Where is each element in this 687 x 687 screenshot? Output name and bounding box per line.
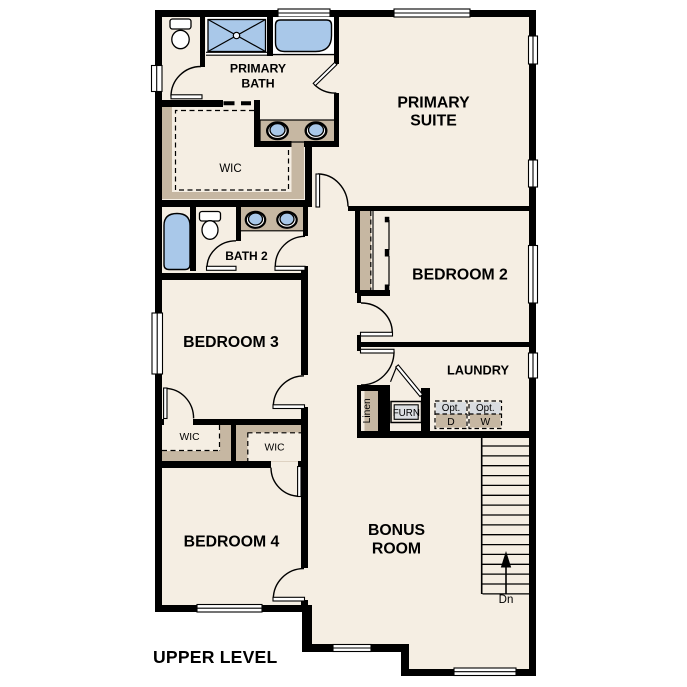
svg-text:W: W	[480, 417, 490, 428]
svg-text:SUITE: SUITE	[410, 113, 457, 130]
svg-text:ROOM: ROOM	[372, 541, 421, 558]
svg-text:BEDROOM 4: BEDROOM 4	[184, 533, 280, 550]
svg-text:D: D	[447, 417, 454, 428]
svg-text:Dn: Dn	[499, 594, 514, 606]
svg-text:LAUNDRY: LAUNDRY	[447, 362, 510, 377]
svg-text:UPPER LEVEL: UPPER LEVEL	[153, 647, 277, 667]
svg-text:Opt.: Opt.	[476, 403, 495, 414]
svg-text:WIC: WIC	[179, 432, 200, 443]
svg-text:PRIMARY: PRIMARY	[397, 95, 470, 112]
svg-text:BONUS: BONUS	[368, 522, 425, 539]
svg-text:BEDROOM 3: BEDROOM 3	[183, 334, 279, 351]
svg-text:WIC: WIC	[219, 163, 241, 175]
svg-text:BATH: BATH	[241, 77, 274, 91]
svg-text:Opt.: Opt.	[442, 403, 461, 414]
svg-text:FURN: FURN	[393, 408, 420, 419]
svg-text:BEDROOM 2: BEDROOM 2	[412, 266, 508, 283]
svg-text:WIC: WIC	[264, 442, 285, 453]
svg-text:PRIMARY: PRIMARY	[230, 62, 286, 76]
svg-text:Linen: Linen	[362, 398, 373, 423]
svg-text:BATH 2: BATH 2	[225, 249, 268, 263]
